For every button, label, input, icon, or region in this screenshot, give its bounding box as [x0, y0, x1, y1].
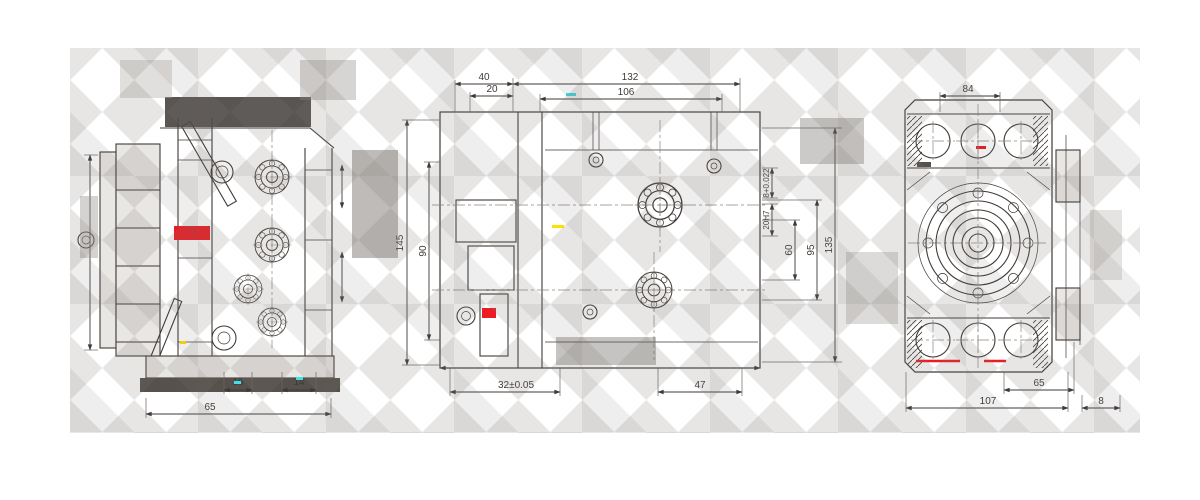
dim-front-top-20: 20: [486, 84, 498, 95]
dim-left-base-65: 65: [204, 402, 216, 413]
cyan-mark-top: [566, 93, 576, 96]
threaded-rod-upper: [182, 122, 237, 207]
dim-right-bottom-65: 65: [1033, 378, 1045, 389]
dim-front-right-8tol: 8+0.022: [762, 168, 771, 198]
drawing-page: 16 14 65: [0, 0, 1200, 500]
dim-front-bottom-32: 32±0.05: [498, 380, 535, 391]
red-highlight-left-view: [174, 226, 210, 240]
yellow-mark-front-view: [552, 225, 564, 228]
red-highlight-front-view: [482, 308, 496, 318]
dim-front-top-106: 106: [618, 87, 635, 98]
view-right-end: 84 65 107 8: [905, 84, 1120, 412]
dim-front-right-60: 60: [784, 244, 795, 256]
dim-front-right-20H7: 20H7: [762, 210, 771, 230]
dim-front-right-135: 135: [824, 236, 835, 253]
dim-front-bottom-47: 47: [694, 380, 706, 391]
dim-front-left-90: 90: [418, 245, 429, 257]
dim-front-right-95: 95: [806, 244, 817, 256]
dim-front-top-40: 40: [478, 72, 490, 83]
engineering-drawing-canvas: 16 14 65: [0, 0, 1200, 500]
dim-right-top-84: 84: [962, 84, 974, 95]
dim-right-bottom-107: 107: [980, 396, 997, 407]
dim-front-top-132: 132: [622, 72, 639, 83]
red-mark-right-top: [976, 146, 986, 149]
view-left-section: 16 14 65: [78, 118, 342, 418]
dim-right-bottom-8: 8: [1098, 396, 1104, 407]
